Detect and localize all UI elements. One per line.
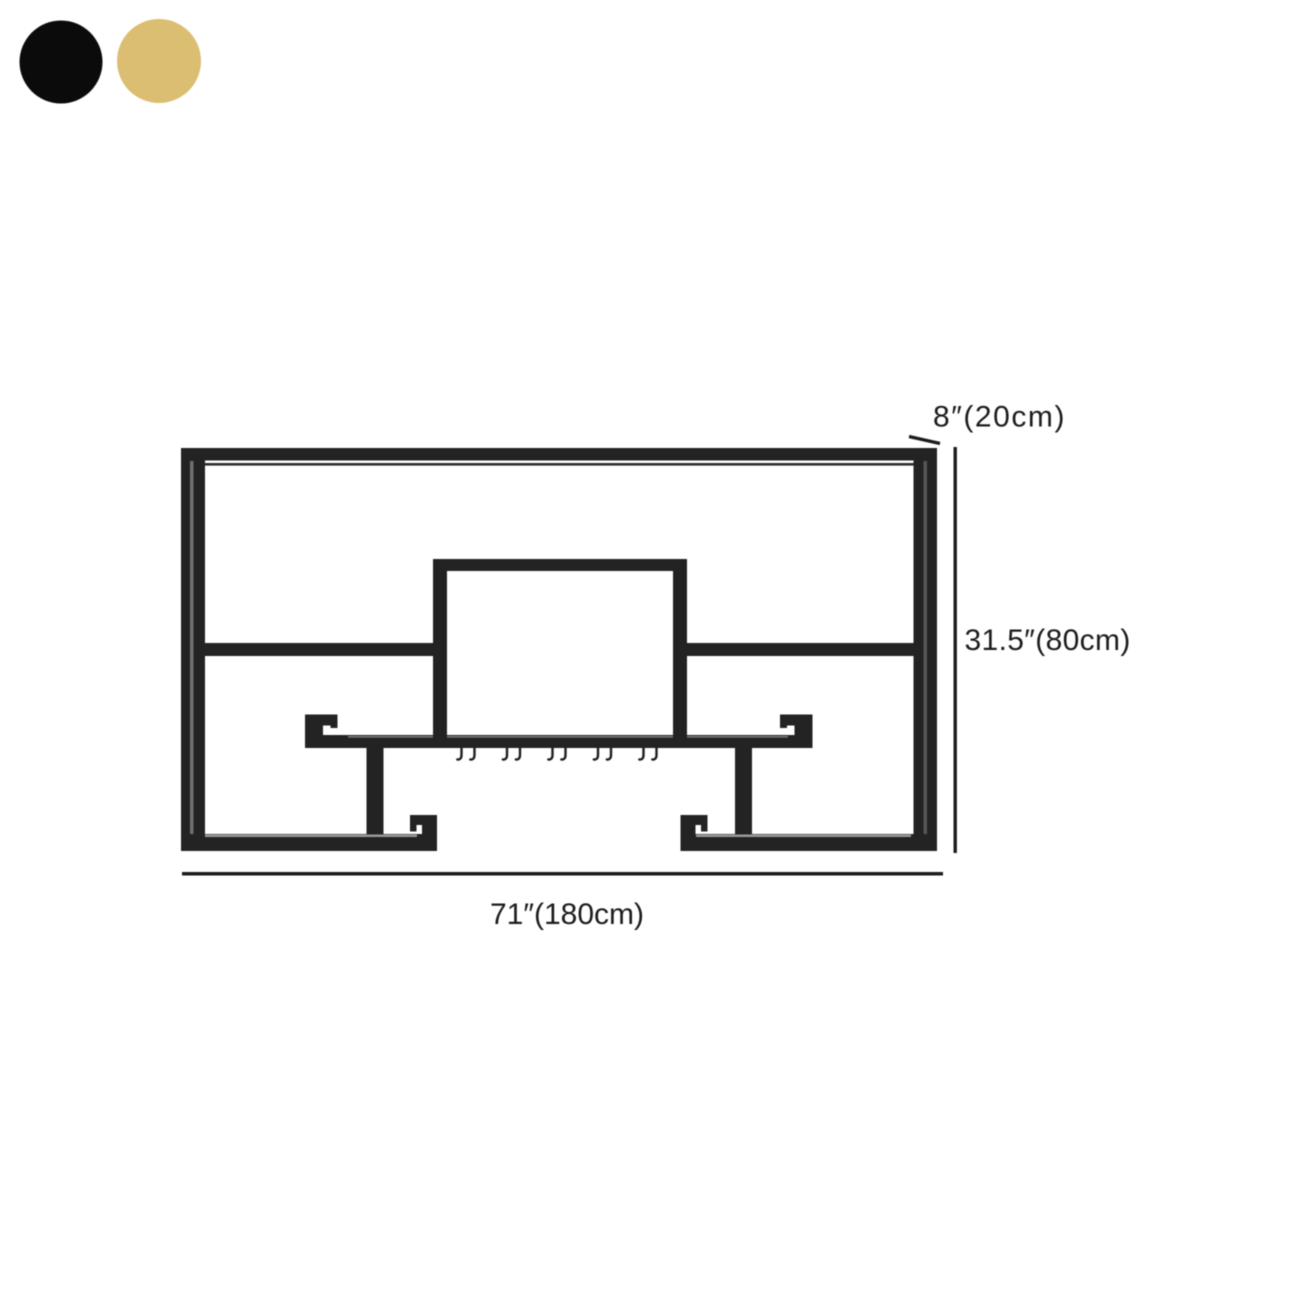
- svg-text:8″(20cm): 8″(20cm): [933, 401, 1066, 434]
- svg-text:71″(180cm): 71″(180cm): [490, 898, 644, 931]
- svg-text:31.5″(80cm): 31.5″(80cm): [965, 624, 1131, 657]
